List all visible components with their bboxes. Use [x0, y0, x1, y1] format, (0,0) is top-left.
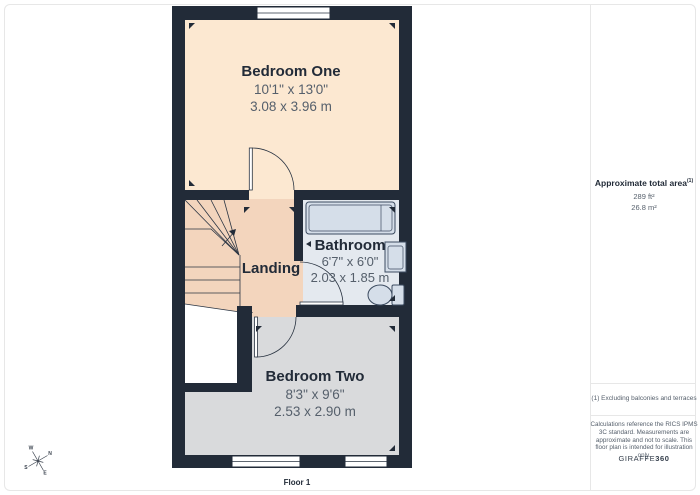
bedroom-one-label: Bedroom One 10'1" x 13'0" 3.08 x 3.96 m	[241, 63, 340, 115]
bathtub	[306, 202, 395, 234]
room-dims-imperial: 10'1" x 13'0"	[241, 81, 340, 98]
brand-suffix: 360	[655, 454, 669, 463]
bedroom-two-label: Bedroom Two 8'3" x 9'6" 2.53 x 2.90 m	[266, 368, 365, 420]
bathroom-label: Bathroom 6'7" x 6'0" 2.03 x 1.85 m	[311, 237, 390, 285]
landing-label: Landing	[242, 260, 300, 278]
total-area-heading: Approximate total area(1)	[595, 178, 693, 188]
total-area-footnote-ref: (1)	[687, 178, 693, 184]
wall	[296, 305, 399, 317]
room-dims-metric: 2.03 x 1.85 m	[311, 270, 390, 286]
wall	[294, 199, 303, 261]
compass-north-label: N	[48, 451, 52, 457]
room-dims-imperial: 8'3" x 9'6"	[266, 386, 365, 403]
room-name: Bathroom	[311, 237, 390, 254]
room-name: Bedroom One	[241, 63, 340, 81]
floorplan-page: N E S W Bedroom One 10'1" x 13'0" 3.08 x…	[0, 0, 700, 495]
brand-name: GIRAFFE	[618, 454, 655, 463]
room-dims-imperial: 6'7" x 6'0"	[311, 254, 390, 270]
footnote-divider	[591, 383, 695, 384]
room-name: Landing	[242, 260, 300, 278]
compass-icon: N E S W	[24, 446, 52, 477]
room-dims-metric: 2.53 x 2.90 m	[266, 403, 365, 420]
wall	[237, 306, 252, 392]
stairs-area	[185, 199, 240, 312]
total-area-ft: 289 ft²	[633, 192, 654, 202]
room-name: Bedroom Two	[266, 368, 365, 386]
wall	[185, 190, 249, 200]
compass-south-label: S	[24, 465, 28, 471]
wall	[185, 383, 252, 392]
window	[345, 456, 387, 467]
window	[232, 456, 300, 467]
footnote: (1) Excluding balconies and terraces	[591, 395, 696, 402]
brand-logo: GIRAFFE360	[618, 454, 669, 463]
floor-label: Floor 1	[284, 478, 311, 487]
total-area-m: 26.8 m²	[631, 203, 656, 213]
window	[257, 7, 330, 19]
total-area-label: Approximate total area	[595, 178, 687, 188]
room-landing	[240, 199, 303, 317]
toilet	[368, 285, 404, 305]
bedroom-one-door-threshold	[249, 189, 294, 200]
disclaimer-divider	[591, 415, 695, 416]
compass-east-label: E	[43, 471, 47, 477]
compass-west-label: W	[29, 446, 34, 452]
panel-divider	[590, 5, 591, 490]
room-dims-metric: 3.08 x 3.96 m	[241, 98, 340, 115]
wall	[294, 190, 399, 200]
